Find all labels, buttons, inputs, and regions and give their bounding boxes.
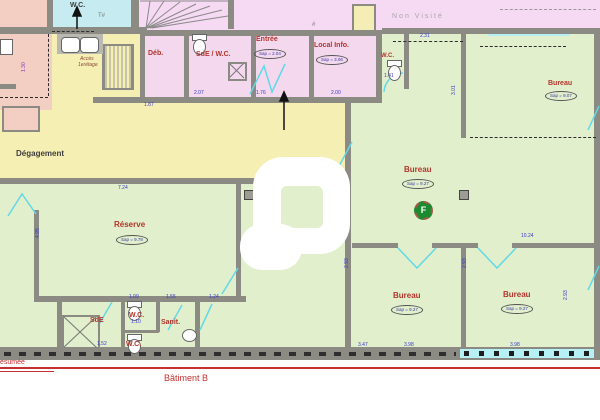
dimension-label: 10.24 xyxy=(521,234,534,239)
room-label-wc-bottom-2: W.C. xyxy=(126,341,141,348)
dimension-label: 3.01 xyxy=(452,85,457,95)
room-area-entree: Sap = 2.04 xyxy=(254,49,286,59)
t-mark-2: # xyxy=(312,22,315,28)
column-marker-2 xyxy=(459,190,469,200)
room-label-wc-top-right: W.C. xyxy=(381,53,394,59)
sink-basin-1 xyxy=(61,37,80,53)
direction-arrows xyxy=(73,7,288,130)
washbasin-sanit xyxy=(182,329,197,342)
room-label-bureau-sw: Bureau xyxy=(393,292,421,300)
room-label-bureau-ne: Bureau xyxy=(548,80,572,87)
red-boundary-line xyxy=(0,367,600,369)
dimension-label: 1.52 xyxy=(97,342,107,347)
dimension-label: 2.93 xyxy=(564,290,569,300)
watermark-blob xyxy=(240,224,302,270)
dimension-label: 1.55 xyxy=(166,295,176,300)
room-label-deb: Déb. xyxy=(148,50,163,57)
room-area-bureau-ne: Sap = 9.07 xyxy=(545,91,577,101)
room-area-bureau-se: Sap = 9.27 xyxy=(501,304,533,314)
dimension-label: 1.41 xyxy=(384,74,394,79)
staircase-top xyxy=(140,1,228,28)
room-area-local-info: Sap = 3.06 xyxy=(316,55,348,65)
dimension-label: 2.31 xyxy=(420,34,430,39)
dimension-label: 1.30 xyxy=(22,62,27,72)
dimension-label: 7.24 xyxy=(118,186,128,191)
room-label-wc-top-left: W.C. xyxy=(70,2,85,9)
room-label-entree: Entrée xyxy=(256,36,278,43)
dimension-label: 2.93 xyxy=(345,258,350,268)
dimension-label: 2.93 xyxy=(463,258,468,268)
dimension-label: 4.95 xyxy=(36,228,41,238)
dimension-label: 3.98 xyxy=(510,343,520,348)
room-label-degagement: Dégagement xyxy=(16,150,64,158)
staircase-access xyxy=(106,46,130,88)
room-area-bureau-sw: Sap = 9.27 xyxy=(391,305,423,315)
room-label-bureau-se: Bureau xyxy=(503,291,531,299)
shower-tray-small xyxy=(228,62,247,81)
room-label-wc-bottom-1: W.C. xyxy=(129,312,144,319)
room-label-sanit: Sanit. xyxy=(161,319,180,326)
t-mark-1: T# xyxy=(98,13,105,19)
dimension-label: 2.07 xyxy=(194,91,204,96)
sink-basin-2 xyxy=(80,37,99,53)
room-label-local-info: Local Info. xyxy=(314,42,349,49)
dimension-label: 1.76 xyxy=(256,91,266,96)
dimension-label: 3.47 xyxy=(358,343,368,348)
dimension-label: 1.10 xyxy=(131,320,141,325)
room-label-sde-wc: SdE / W.C. xyxy=(196,51,231,58)
dimension-label: 1.09 xyxy=(129,295,139,300)
marker-f-badge: F xyxy=(414,201,433,220)
dimension-label: 1.24 xyxy=(209,295,219,300)
non-visite-label: Non Visité xyxy=(392,13,444,20)
batiment-b-label: Bâtiment B xyxy=(164,374,208,383)
presumee-label: esumée xyxy=(0,359,25,366)
room-area-bureau-center: Sap = 9.27 xyxy=(402,179,434,189)
watermark-hole xyxy=(281,186,323,228)
room-area-reserve: Sap = 9.78 xyxy=(116,235,148,245)
red-underline xyxy=(0,371,54,372)
dimension-label: 1.87 xyxy=(144,103,154,108)
room-label-bureau-center: Bureau xyxy=(404,166,432,174)
dimension-label: 2.00 xyxy=(331,91,341,96)
acces-label-line2: 1erétage xyxy=(78,63,98,68)
dimension-label: 3.98 xyxy=(404,343,414,348)
room-label-reserve: Réserve xyxy=(114,221,145,229)
room-label-sde-bottom: SdE xyxy=(90,317,104,324)
floor-plan-canvas: W.C.Déb.SdE / W.C.EntréeSap = 2.04Local … xyxy=(0,0,600,420)
appliance xyxy=(0,39,13,55)
